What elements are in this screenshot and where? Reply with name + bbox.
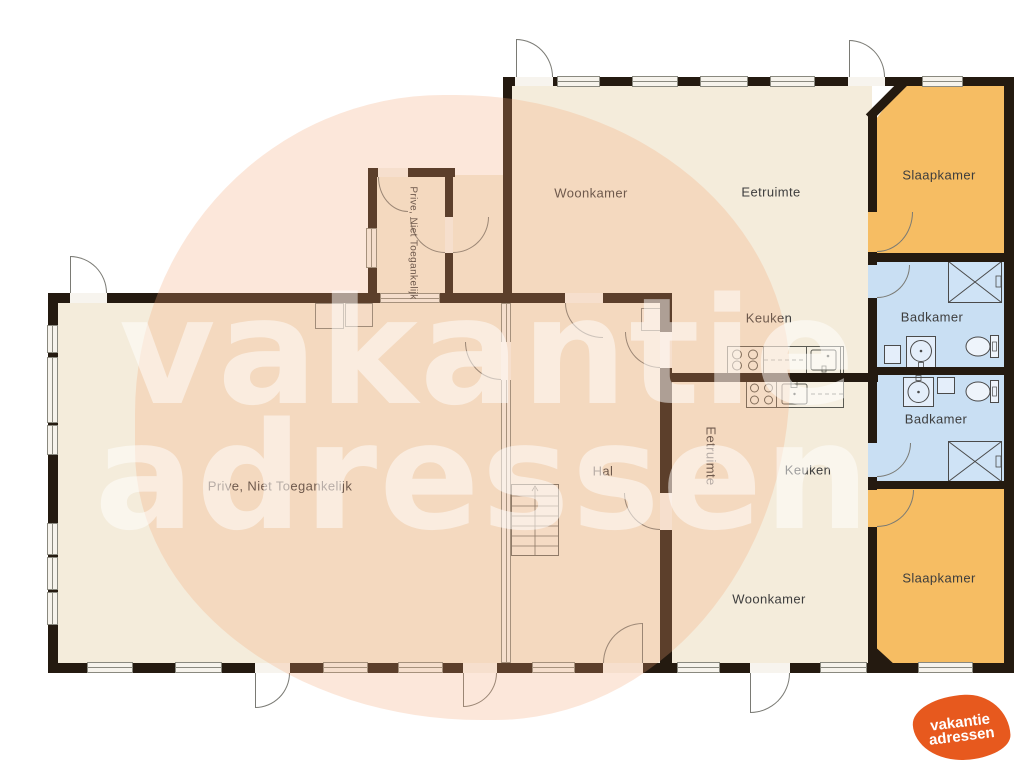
door-swing: [516, 39, 553, 77]
door-opening: [868, 265, 877, 298]
window: [557, 76, 600, 87]
room-label-keuken-bottom: Keuken: [785, 463, 832, 478]
door-swing: [750, 673, 790, 713]
room-label-badkamer-bottom: Badkamer: [905, 412, 967, 427]
cupboard: [345, 303, 373, 327]
room-woonkamer-bottom-floor: [668, 377, 872, 667]
door-opening: [501, 342, 511, 380]
shower-fixture: [948, 261, 1002, 303]
window: [323, 662, 368, 673]
toilet-fixture: [964, 379, 1000, 405]
room-label-eetruimte-bottom: Eetruimte: [704, 426, 719, 485]
cabinet: [641, 308, 661, 331]
door-swing: [70, 256, 107, 293]
door-opening: [868, 443, 877, 477]
wall: [662, 373, 878, 382]
window: [87, 662, 133, 673]
window: [47, 357, 58, 423]
window: [532, 662, 575, 673]
window: [918, 662, 973, 673]
window: [632, 76, 678, 87]
door-swing: [849, 40, 885, 77]
door-opening: [868, 490, 877, 527]
door-opening: [660, 332, 672, 368]
door-opening: [445, 217, 453, 253]
sink-fixture: [884, 336, 936, 368]
window: [47, 592, 58, 625]
door-opening: [463, 663, 497, 673]
wall: [868, 253, 1014, 262]
wall: [868, 367, 1014, 375]
kitchen-counter-stove-sink: [727, 346, 844, 374]
door-opening: [565, 293, 603, 303]
room-label-slaapkamer-bottom: Slaapkamer: [902, 571, 975, 586]
window: [700, 76, 748, 87]
window: [175, 662, 222, 673]
window: [770, 76, 815, 87]
window: [677, 662, 720, 673]
shower-fixture: [948, 441, 1002, 482]
door-opening: [660, 493, 672, 530]
door-opening: [70, 293, 107, 303]
toilet-fixture: [964, 334, 1000, 360]
room-label-eetruimte-top: Eetruimte: [741, 185, 800, 200]
door-opening: [750, 663, 790, 673]
door-swing: [463, 673, 497, 707]
window: [47, 523, 58, 555]
window: [47, 325, 58, 353]
room-label-keuken-top: Keuken: [746, 311, 793, 326]
window: [922, 76, 963, 87]
wall: [503, 77, 512, 303]
window: [47, 557, 58, 590]
window: [398, 662, 443, 673]
door-opening: [515, 77, 553, 86]
door-opening: [603, 663, 643, 673]
vakantieadressen-logo: vakantie adressen: [903, 690, 1021, 766]
door-opening: [868, 212, 877, 252]
room-label-slaapkamer-top: Slaapkamer: [902, 168, 975, 183]
window: [366, 228, 377, 268]
kitchen-counter-stove-sink: [746, 380, 844, 408]
window: [47, 425, 58, 455]
door-opening: [378, 168, 408, 177]
door-swing: [255, 673, 290, 708]
room-label-woonkamer-bottom: Woonkamer: [732, 592, 805, 607]
room-label-badkamer-top: Badkamer: [901, 310, 963, 325]
room-label-corridor: Prive, Niet Toegankelijk: [408, 186, 419, 299]
room-label-prive: Prive, Niet Toegankelijk: [208, 479, 352, 494]
cupboard: [315, 303, 344, 329]
wall: [868, 481, 1014, 489]
door-opening: [255, 663, 290, 673]
wall: [1004, 77, 1014, 673]
door-opening: [848, 77, 885, 86]
room-label-woonkamer-top: Woonkamer: [554, 186, 627, 201]
window: [820, 662, 867, 673]
room-eetruimte-keuken-top-floor: [660, 81, 872, 377]
room-label-hal: Hal: [593, 464, 614, 479]
wall: [868, 115, 877, 673]
stairs: [511, 484, 559, 556]
floorplan-canvas: Woonkamer Eetruimte Slaapkamer Badkamer …: [0, 0, 1024, 768]
sink-fixture: [903, 375, 955, 407]
